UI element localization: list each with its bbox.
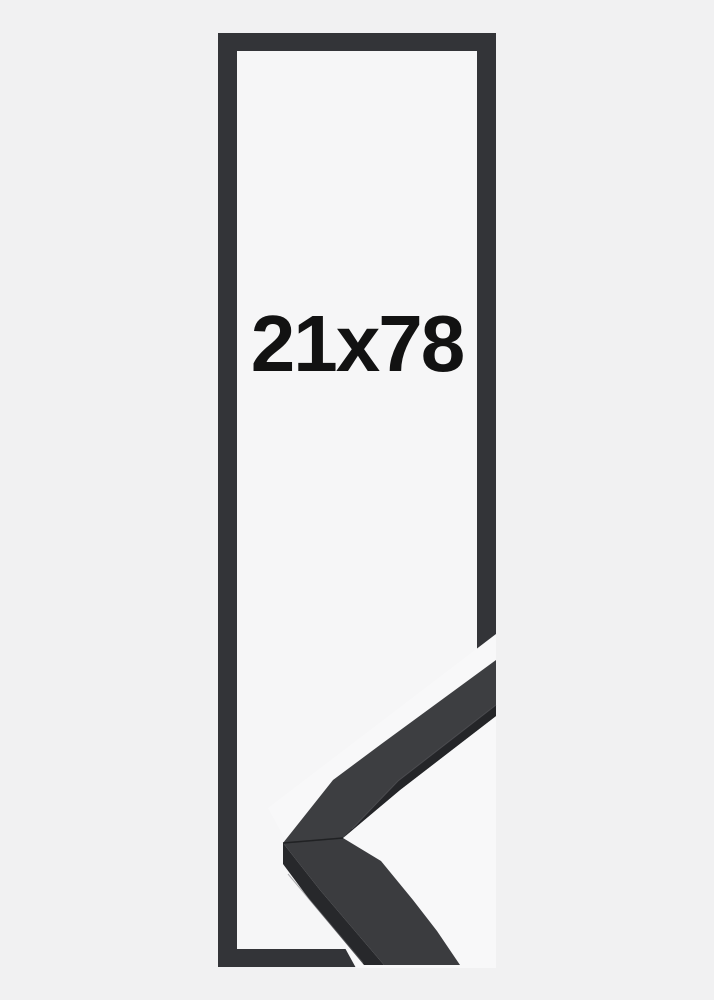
frame-outline-top-bar — [218, 33, 496, 51]
product-image: 21x78 — [0, 0, 714, 1000]
frame-outline-left-bar — [218, 33, 237, 967]
size-label: 21x78 — [251, 299, 464, 388]
